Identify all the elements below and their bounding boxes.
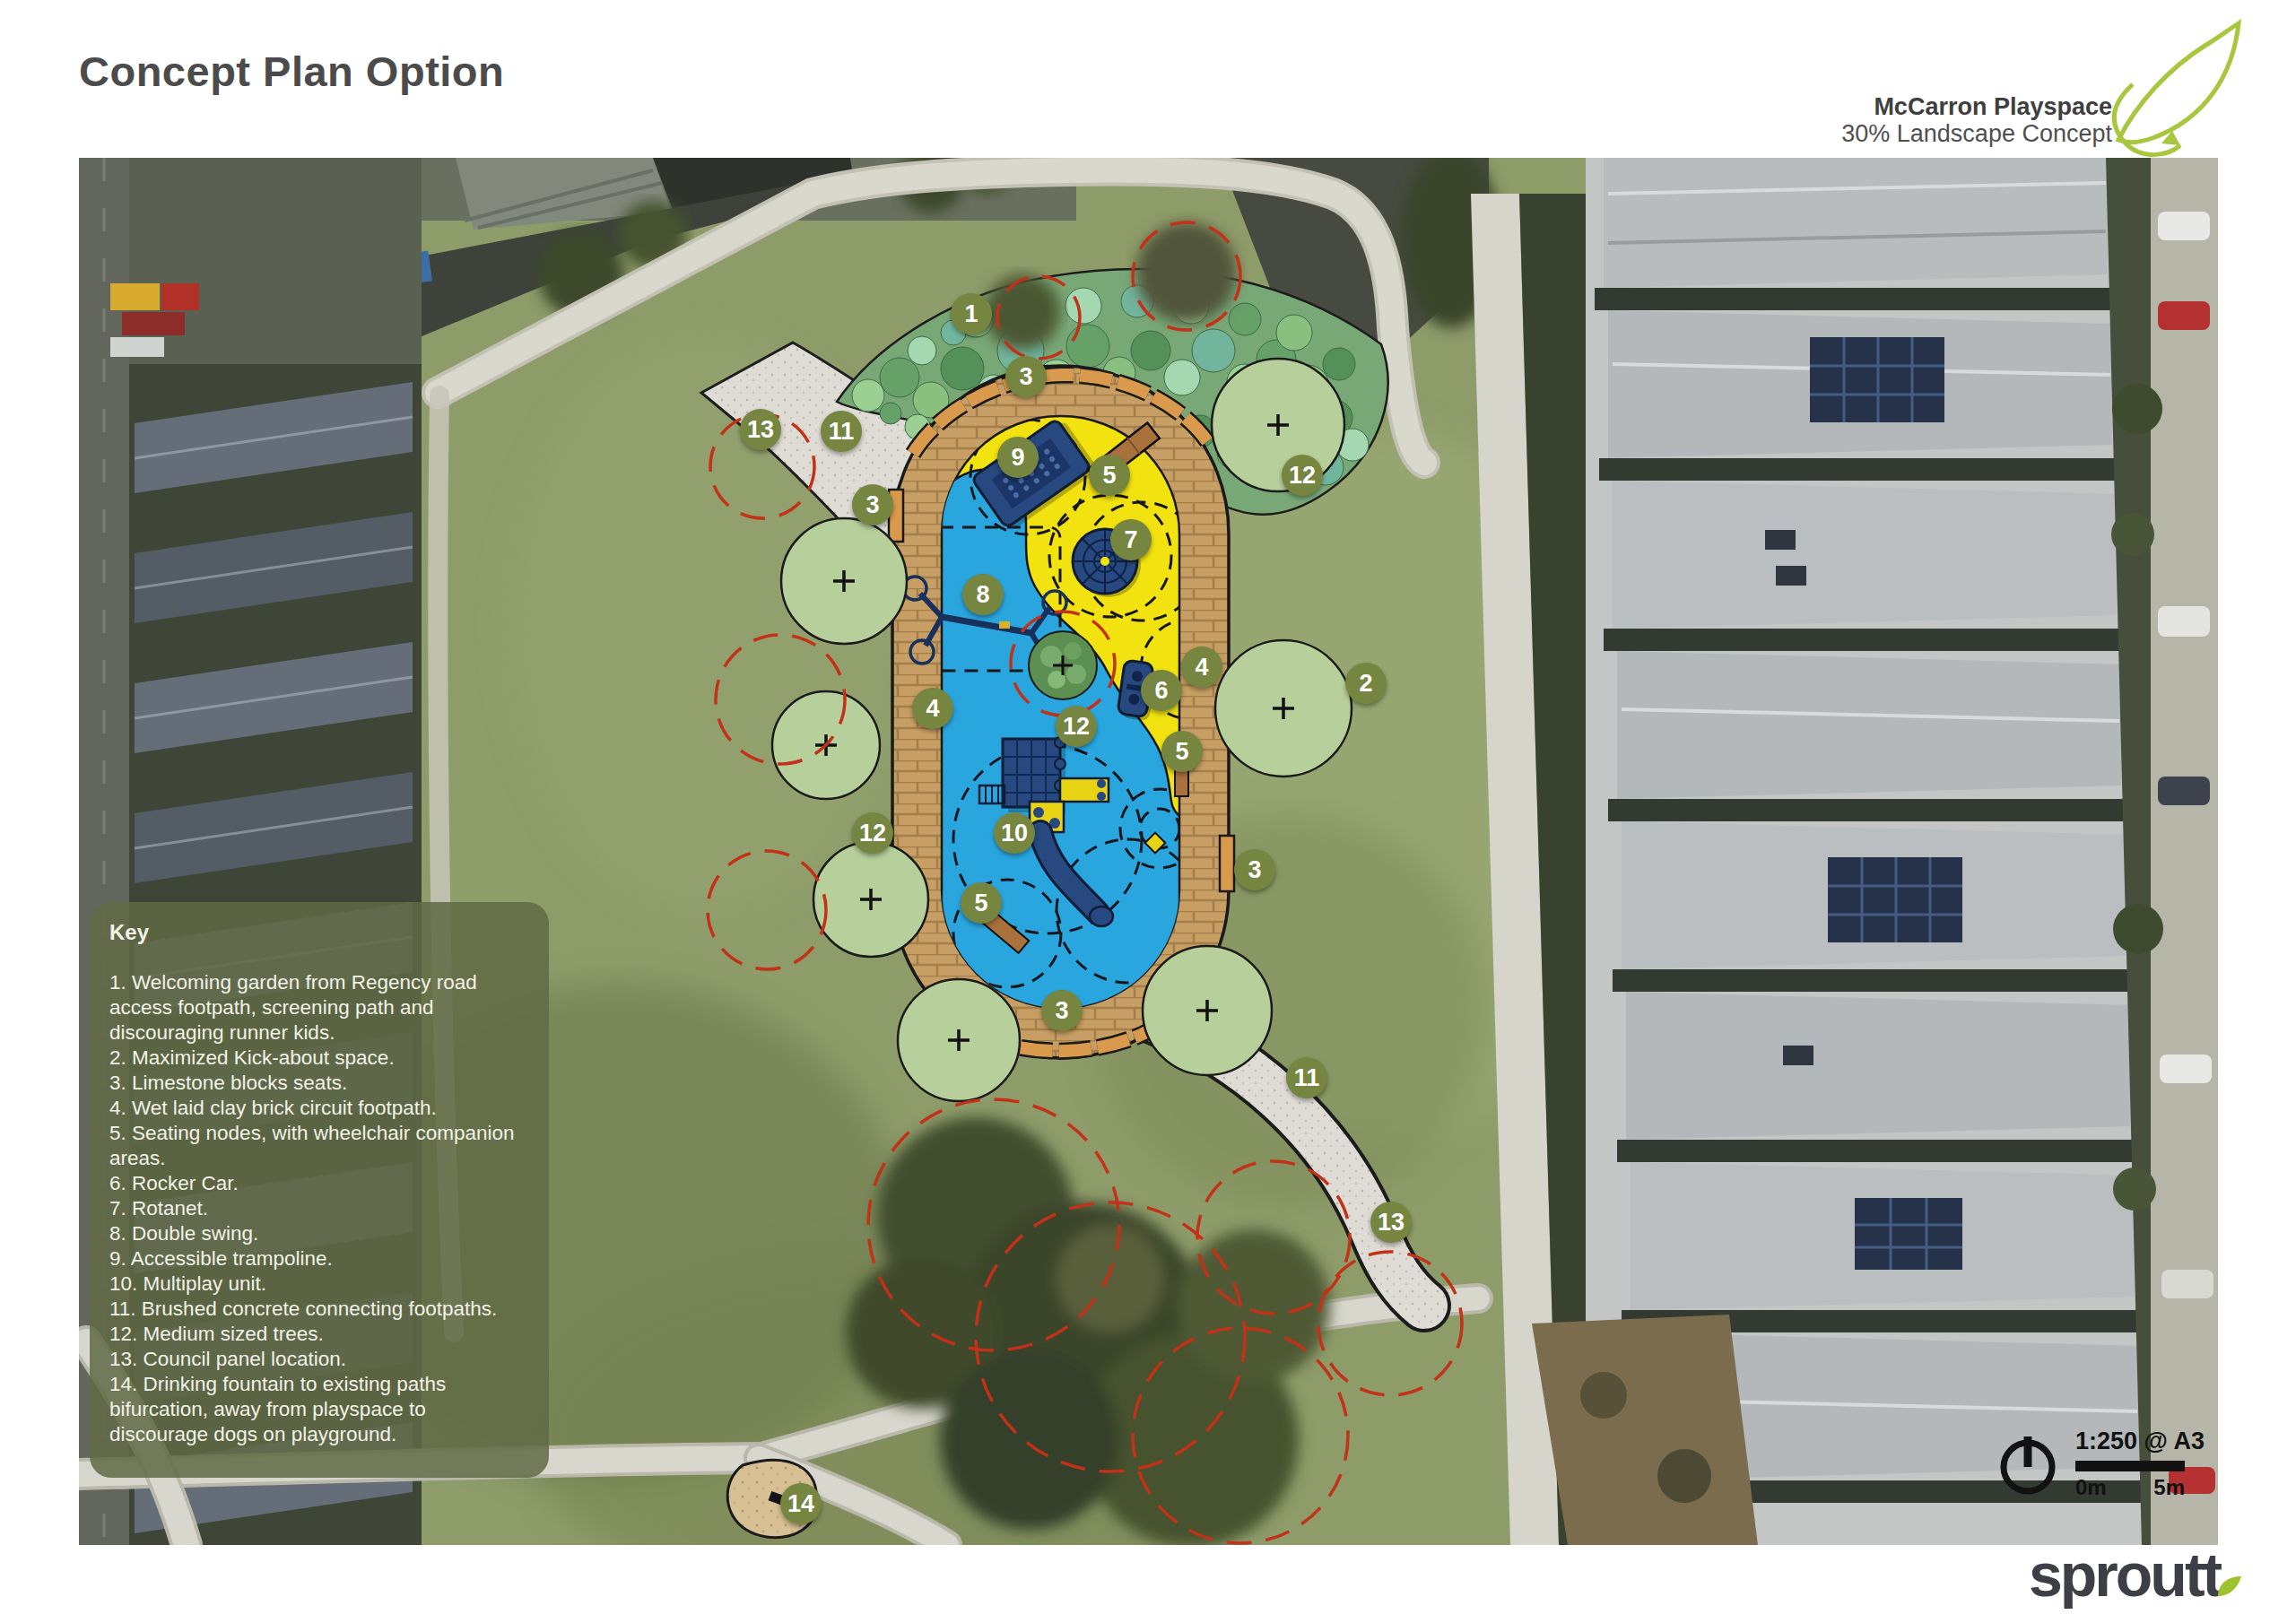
project-title-block: McCarron Playspace 30% Landscape Concept [1841, 93, 2112, 147]
plan-marker-11: 11 [821, 411, 862, 452]
scale-end: 5m [2153, 1475, 2185, 1500]
plan-marker-12: 12 [1282, 455, 1323, 496]
plan-marker-5: 5 [961, 882, 1002, 924]
concept-plan-page: Concept Plan Option McCarron Playspace 3… [0, 0, 2296, 1623]
plan-marker-8: 8 [962, 574, 1004, 615]
north-arrow-icon [1995, 1428, 2061, 1499]
plan-marker-11: 11 [1286, 1057, 1327, 1098]
plan-marker-3: 3 [1041, 990, 1083, 1031]
plan-marker-4: 4 [1181, 647, 1222, 688]
plan-marker-1: 1 [951, 293, 992, 334]
plan-marker-3: 3 [852, 484, 893, 525]
project-name: McCarron Playspace [1841, 93, 2112, 120]
plan-marker-9: 9 [997, 437, 1039, 478]
scale-bar [2075, 1461, 2185, 1471]
plan-marker-3: 3 [1234, 849, 1275, 890]
plan-marker-2: 2 [1345, 663, 1387, 704]
page-title: Concept Plan Option [79, 47, 504, 96]
plan-marker-5: 5 [1161, 731, 1203, 772]
plan-marker-3: 3 [1005, 356, 1047, 397]
plan-marker-5: 5 [1089, 455, 1130, 496]
plan-marker-14: 14 [780, 1483, 822, 1524]
plan-marker-4: 4 [912, 688, 953, 729]
footer-leaf-icon [2216, 1575, 2243, 1598]
plan-marker-7: 7 [1110, 519, 1152, 560]
plan-marker-12: 12 [1056, 706, 1097, 747]
scale-start: 0m [2075, 1475, 2107, 1500]
plan-marker-10: 10 [994, 812, 1035, 854]
plan-marker-6: 6 [1141, 670, 1182, 711]
plan-marker-12: 12 [852, 812, 893, 854]
footer-logo-text: sproutt [2029, 1548, 2220, 1601]
plan-marker-13: 13 [740, 409, 781, 450]
project-subtitle: 30% Landscape Concept [1841, 120, 2112, 147]
plan-marker-13: 13 [1370, 1202, 1412, 1243]
scale-block: 1:250 @ A3 0m 5m [1995, 1428, 2205, 1500]
brand-leaf-icon [2097, 18, 2249, 170]
marker-layer: 131311951237846241251210353111314 [79, 158, 2218, 1545]
footer-logo: sproutt [2029, 1548, 2243, 1601]
scale-ratio: 1:250 @ A3 [2075, 1428, 2205, 1455]
aerial-plan-map: Key 1. Welcoming garden from Regency roa… [79, 158, 2218, 1545]
